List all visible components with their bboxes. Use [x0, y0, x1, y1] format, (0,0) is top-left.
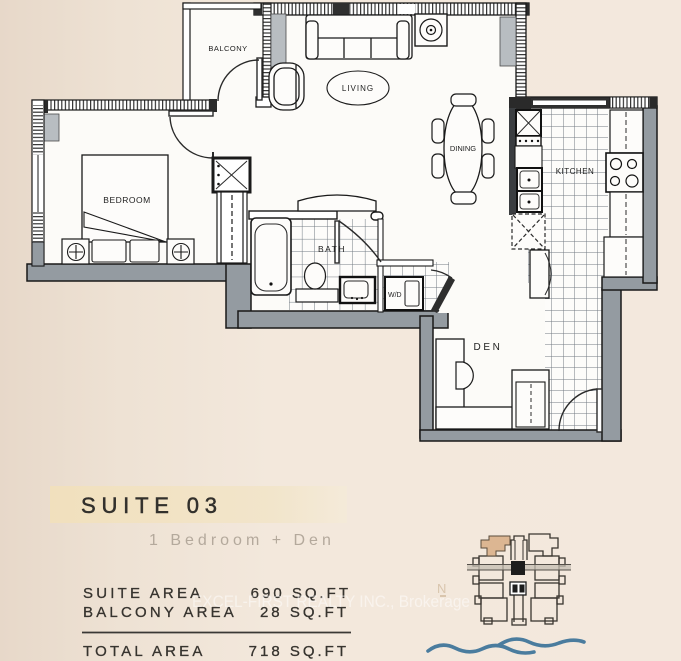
svg-text:W/D: W/D — [388, 292, 402, 299]
svg-text:SUITE 03: SUITE 03 — [81, 493, 223, 518]
svg-text:1 Bedroom + Den: 1 Bedroom + Den — [149, 532, 335, 549]
svg-text:BATH: BATH — [318, 244, 346, 254]
svg-text:TOTAL AREA: TOTAL AREA — [83, 643, 206, 660]
svg-text:BALCONY: BALCONY — [208, 44, 247, 53]
svg-text:DEN: DEN — [474, 342, 503, 353]
svg-text:SUITE AREA: SUITE AREA — [83, 585, 203, 602]
svg-text:LIVING: LIVING — [342, 84, 374, 93]
svg-text:N: N — [437, 581, 446, 596]
svg-text:EXCEL-FIRST REALTY INC., Broke: EXCEL-FIRST REALTY INC., Brokerage — [192, 592, 470, 611]
svg-text:KITCHEN: KITCHEN — [556, 167, 595, 176]
svg-text:DINING: DINING — [450, 144, 476, 153]
svg-text:718 SQ.FT: 718 SQ.FT — [249, 643, 349, 660]
svg-text:BEDROOM: BEDROOM — [103, 195, 150, 205]
